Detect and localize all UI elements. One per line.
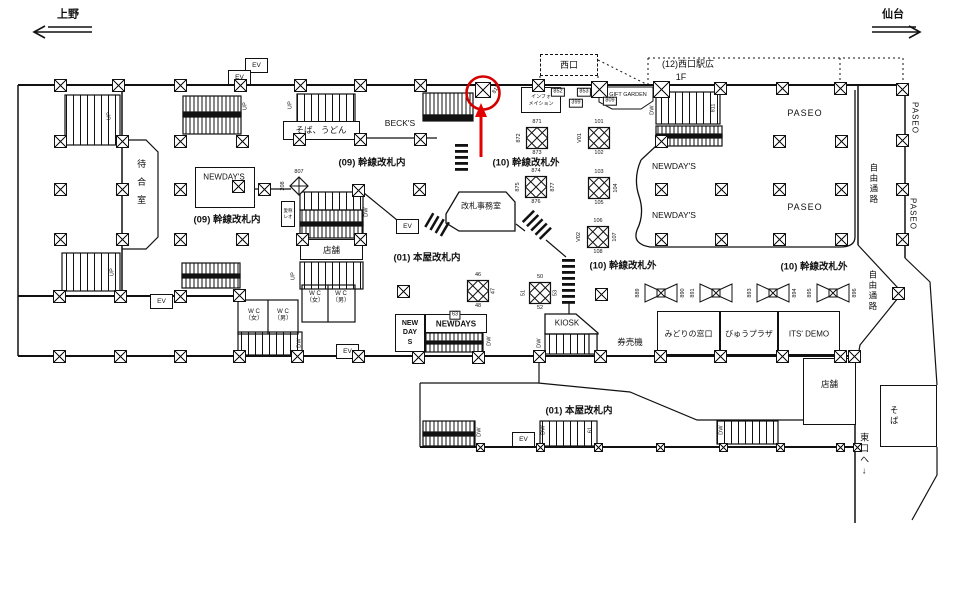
ad-marker-106[interactable]: 106V02107108 bbox=[586, 225, 610, 249]
ad-number-tag-853[interactable]: 853 bbox=[577, 88, 591, 97]
wc-left-male: W C （男） bbox=[274, 309, 292, 323]
newdays-right-label2: NEWDAY'S bbox=[652, 211, 696, 221]
ad-marker-871[interactable]: 871872873 bbox=[525, 126, 549, 150]
ad-position-number: 105 bbox=[594, 201, 603, 207]
ad-position-number: 875 bbox=[516, 182, 522, 191]
pillar-marker bbox=[536, 443, 545, 452]
pillar-marker bbox=[174, 350, 187, 363]
ad-position-number: V02 bbox=[577, 232, 583, 242]
direction-arrow-left bbox=[34, 26, 92, 38]
pillar-marker bbox=[354, 79, 367, 92]
its-demo-box: ITS' DEMO bbox=[778, 311, 840, 355]
kansen-outside-mid-label: (10) 幹線改札外 bbox=[589, 262, 656, 273]
wc-label: W C bbox=[306, 291, 324, 298]
ad-position-number: 208 bbox=[281, 181, 287, 190]
kiosk-label: KIOSK bbox=[555, 318, 579, 327]
ad-position-number: 873 bbox=[532, 151, 541, 157]
pillar-marker bbox=[354, 233, 367, 246]
pillar-marker bbox=[234, 79, 247, 92]
paseo-label: PASEO bbox=[787, 108, 822, 118]
ad-position-number: 51 bbox=[521, 290, 527, 296]
pillar-marker bbox=[714, 350, 727, 363]
pillar-marker bbox=[291, 350, 304, 363]
ad-position-number: 46 bbox=[475, 273, 481, 279]
stair-direction-label: DW bbox=[541, 425, 547, 435]
waiting-room-label: 待合室 bbox=[136, 159, 146, 213]
pillar-marker bbox=[412, 351, 425, 364]
information-label: インフォ bbox=[531, 93, 551, 100]
elevator-box: EV bbox=[512, 432, 535, 447]
ad-marker-889[interactable]: 889890 bbox=[644, 283, 678, 303]
pillar-marker bbox=[848, 350, 861, 363]
pillar-marker bbox=[594, 350, 607, 363]
pillar-marker bbox=[533, 350, 546, 363]
becks-label: BECK'S bbox=[385, 119, 415, 129]
pillar-marker bbox=[54, 183, 67, 196]
pillar-marker bbox=[53, 290, 66, 303]
direction-label-ueno: 上野 bbox=[57, 9, 79, 22]
pillar-marker bbox=[352, 350, 365, 363]
free-passage-label: 自由通路 bbox=[868, 163, 878, 205]
honya-inside-top-label: (01) 本屋改札内 bbox=[393, 254, 460, 265]
reo-label2: レオ bbox=[284, 214, 293, 220]
stair-direction-label: DW bbox=[537, 338, 543, 348]
ad-position-number: 47 bbox=[491, 288, 497, 294]
ad-marker-103[interactable]: 103104105 bbox=[587, 176, 611, 200]
ad-marker-874[interactable]: 874875877876 bbox=[524, 175, 548, 199]
view-plaza-label: びゅうプラザ bbox=[725, 329, 773, 340]
wc-left-female: W C （女） bbox=[245, 309, 263, 323]
stair-direction-label: DW bbox=[297, 338, 303, 348]
west-plaza-label: (12)西口駅広 bbox=[662, 59, 714, 69]
pillar-marker bbox=[776, 82, 789, 95]
stair-direction-label: DW bbox=[477, 427, 483, 437]
soba-label: そば bbox=[888, 406, 900, 427]
ad-position-number: 876 bbox=[531, 200, 540, 206]
pillar-marker bbox=[54, 135, 67, 148]
pillar-marker bbox=[834, 350, 847, 363]
ad-position-number: 872 bbox=[517, 133, 523, 142]
paseo-label2: PASEO bbox=[787, 202, 822, 212]
ad-number-tag-399[interactable]: 399 bbox=[569, 99, 583, 108]
pillar-marker bbox=[896, 83, 909, 96]
midori-madoguchi-label: みどりの窓口 bbox=[665, 329, 713, 340]
pillar-marker bbox=[719, 443, 728, 452]
ad-position-number: 807 bbox=[294, 170, 303, 176]
shop-right-box: 店舗 bbox=[803, 358, 856, 425]
ad-position-number: 891 bbox=[691, 288, 697, 297]
soba-box: そば bbox=[880, 385, 937, 447]
pillar-marker bbox=[655, 183, 668, 196]
new-day-s-label: NEW bbox=[402, 319, 418, 328]
ad-number-811: 811 bbox=[711, 104, 717, 113]
elevator-box: EV bbox=[396, 219, 419, 234]
pillar-marker bbox=[715, 233, 728, 246]
pillar-marker bbox=[354, 133, 367, 146]
pillar-marker bbox=[54, 233, 67, 246]
view-plaza-box: びゅうプラザ bbox=[720, 311, 778, 355]
newdays-bottom-label: NEWDAYS bbox=[436, 319, 476, 328]
pillar-marker bbox=[835, 233, 848, 246]
pillar-marker bbox=[294, 79, 307, 92]
shop-right-label: 店舗 bbox=[821, 378, 838, 390]
kansen-inside-left-label: (09) 幹線改札内 bbox=[193, 216, 260, 227]
pillar-marker bbox=[232, 180, 245, 193]
ad-position-number: 894 bbox=[793, 288, 799, 297]
ad-position-number: V01 bbox=[578, 133, 584, 143]
information-label2: メイション bbox=[528, 100, 553, 107]
pillar-marker bbox=[233, 289, 246, 302]
ad-number-818: 818 bbox=[492, 85, 502, 96]
station-floor-plan: インフォ メイション 愛称 レオ 店舗 NEW DAY S NEWDAYS みど… bbox=[0, 0, 960, 605]
pillar-marker bbox=[174, 79, 187, 92]
ad-position-number: 50 bbox=[537, 275, 543, 281]
stair-direction-label: DW bbox=[719, 425, 725, 435]
stair-direction-label: DW bbox=[650, 105, 656, 115]
pillar-marker bbox=[116, 183, 129, 196]
wc-female-label: （女） bbox=[306, 298, 324, 305]
wc-upper-female: W C （女） bbox=[306, 291, 324, 305]
pillar-marker bbox=[236, 233, 249, 246]
ad-number-61: 61 bbox=[588, 427, 594, 433]
pillar-marker bbox=[714, 82, 727, 95]
pillar-marker bbox=[293, 133, 306, 146]
ticket-office-label: 改札事務室 bbox=[461, 201, 501, 210]
ad-marker-807[interactable]: 807208 bbox=[289, 176, 309, 196]
direction-arrow-right bbox=[872, 26, 920, 38]
ad-position-number: 52 bbox=[537, 306, 543, 312]
pillar-marker bbox=[653, 81, 670, 98]
paseo-vertical-label: PASEO bbox=[910, 102, 919, 134]
pillar-marker bbox=[835, 183, 848, 196]
stair-direction-label: UP bbox=[107, 112, 113, 120]
pillar-marker bbox=[595, 288, 608, 301]
kansen-inside-center-label: (09) 幹線改札内 bbox=[338, 159, 405, 170]
pillar-marker bbox=[174, 183, 187, 196]
stair-direction-label: DW bbox=[487, 336, 493, 346]
pillar-marker bbox=[174, 135, 187, 148]
pillar-marker bbox=[53, 350, 66, 363]
ad-position-number: 871 bbox=[532, 120, 541, 126]
pillar-marker bbox=[853, 443, 862, 452]
ad-position-number: 101 bbox=[594, 120, 603, 126]
wc-label: W C bbox=[245, 309, 263, 316]
ad-position-number: 53 bbox=[553, 290, 559, 296]
pillar-marker bbox=[532, 79, 545, 92]
pillar-marker bbox=[655, 135, 668, 148]
kansen-outside-right-label: (10) 幹線改札外 bbox=[780, 263, 847, 274]
pillar-marker bbox=[773, 233, 786, 246]
pillar-marker bbox=[397, 285, 410, 298]
new-day-s-label2: DAY bbox=[403, 328, 417, 337]
pillar-marker bbox=[776, 350, 789, 363]
wc-male-label: （男） bbox=[274, 316, 292, 323]
ad-position-number: 106 bbox=[593, 219, 602, 225]
pillar-marker bbox=[414, 79, 427, 92]
pillar-marker bbox=[414, 133, 427, 146]
ad-position-number: 104 bbox=[614, 183, 620, 192]
pillar-marker bbox=[654, 350, 667, 363]
pillar-marker bbox=[594, 443, 603, 452]
pillar-marker bbox=[54, 79, 67, 92]
west-plaza-floor-label: 1F bbox=[676, 72, 687, 82]
pillar-marker bbox=[413, 183, 426, 196]
ad-marker-893[interactable]: 893894 bbox=[756, 283, 790, 303]
pillar-marker bbox=[114, 290, 127, 303]
ad-position-number: 893 bbox=[748, 288, 754, 297]
wc-label: W C bbox=[332, 291, 350, 298]
ad-position-number: 48 bbox=[475, 304, 481, 310]
paseo-vertical-label2: PASEO bbox=[908, 198, 917, 230]
shop-center-label: 店舗 bbox=[323, 244, 340, 256]
midori-madoguchi-box: みどりの窓口 bbox=[657, 311, 720, 355]
kansen-outside-top-label: (10) 幹線改札外 bbox=[492, 159, 559, 170]
ad-position-number: 103 bbox=[594, 170, 603, 176]
pillar-marker bbox=[591, 81, 608, 98]
ad-marker-891[interactable]: 891 bbox=[699, 283, 733, 303]
pillar-marker bbox=[655, 233, 668, 246]
pillar-marker bbox=[656, 443, 665, 452]
pillar-marker bbox=[116, 135, 129, 148]
pillar-marker bbox=[233, 350, 246, 363]
free-passage-label2: 自由通路 bbox=[867, 270, 877, 312]
direction-label-sendai: 仙台 bbox=[882, 9, 904, 22]
ad-position-number: 874 bbox=[531, 169, 540, 175]
pillar-marker bbox=[892, 287, 905, 300]
pillar-marker bbox=[236, 135, 249, 148]
stair-direction-label: UP bbox=[110, 268, 116, 276]
ad-position-number: 889 bbox=[636, 288, 642, 297]
stair-direction-label: UP bbox=[291, 272, 297, 280]
ad-marker-895[interactable]: 895896 bbox=[816, 283, 850, 303]
newdays-right-label: NEWDAY'S bbox=[652, 162, 696, 172]
new-day-s-box: NEW DAY S bbox=[395, 314, 425, 352]
stair-direction-label: UP bbox=[288, 101, 294, 109]
ad-marker-50[interactable]: 50515352 bbox=[528, 281, 552, 305]
ad-number-tag-63[interactable]: 63 bbox=[449, 311, 460, 320]
ad-position-number: 107 bbox=[613, 232, 619, 241]
highlight-arrow-head bbox=[475, 103, 487, 117]
pillar-marker bbox=[296, 233, 309, 246]
pillar-marker bbox=[773, 135, 786, 148]
ticket-office-outline bbox=[446, 192, 515, 231]
ad-position-number: 877 bbox=[551, 182, 557, 191]
highlighted-ad-position-marker[interactable] bbox=[475, 82, 491, 98]
pillar-marker bbox=[112, 79, 125, 92]
its-demo-label: ITS' DEMO bbox=[789, 330, 829, 339]
ad-marker-101[interactable]: 101V01102 bbox=[587, 126, 611, 150]
pillar-marker bbox=[174, 233, 187, 246]
pillar-marker bbox=[776, 443, 785, 452]
pillar-marker bbox=[472, 351, 485, 364]
pillar-marker bbox=[896, 183, 909, 196]
ad-position-number: 895 bbox=[808, 288, 814, 297]
stair-direction-label: UP bbox=[243, 102, 249, 110]
stair-direction-label: DW bbox=[364, 207, 370, 217]
ad-position-number: 108 bbox=[593, 250, 602, 256]
ad-position-number: 896 bbox=[853, 288, 859, 297]
pillar-marker bbox=[476, 443, 485, 452]
west-gate-label: 西口 bbox=[560, 60, 578, 70]
ad-number-tag-852[interactable]: 852 bbox=[551, 88, 565, 97]
ad-position-number: 102 bbox=[594, 151, 603, 157]
wc-label: W C bbox=[274, 309, 292, 316]
new-day-s-label3: S bbox=[408, 338, 413, 347]
wc-male-label: （男） bbox=[332, 298, 350, 305]
ad-marker-46[interactable]: 464748 bbox=[466, 279, 490, 303]
honya-inside-bottom-label: (01) 本屋改札内 bbox=[545, 407, 612, 418]
ad-position-number: 890 bbox=[681, 288, 687, 297]
pillar-marker bbox=[896, 233, 909, 246]
wc-upper-male: W C （男） bbox=[332, 291, 350, 305]
pillar-marker bbox=[834, 82, 847, 95]
reo-box: 愛称 レオ bbox=[281, 201, 295, 227]
ad-number-tag-809[interactable]: 809 bbox=[603, 97, 617, 106]
pillar-marker bbox=[835, 135, 848, 148]
pillar-marker bbox=[114, 350, 127, 363]
pillar-marker bbox=[174, 290, 187, 303]
pillar-marker bbox=[352, 184, 365, 197]
east-exit-label: 東口へ↓ bbox=[859, 433, 869, 478]
elevator-box: EV bbox=[150, 294, 173, 309]
pillar-marker bbox=[773, 183, 786, 196]
pillar-marker bbox=[258, 183, 271, 196]
pillar-marker bbox=[836, 443, 845, 452]
pillar-marker bbox=[715, 183, 728, 196]
pillar-marker bbox=[896, 134, 909, 147]
wc-female-label: （女） bbox=[245, 316, 263, 323]
pillar-marker bbox=[116, 233, 129, 246]
ticket-machines-label: 券売機 bbox=[617, 338, 643, 348]
